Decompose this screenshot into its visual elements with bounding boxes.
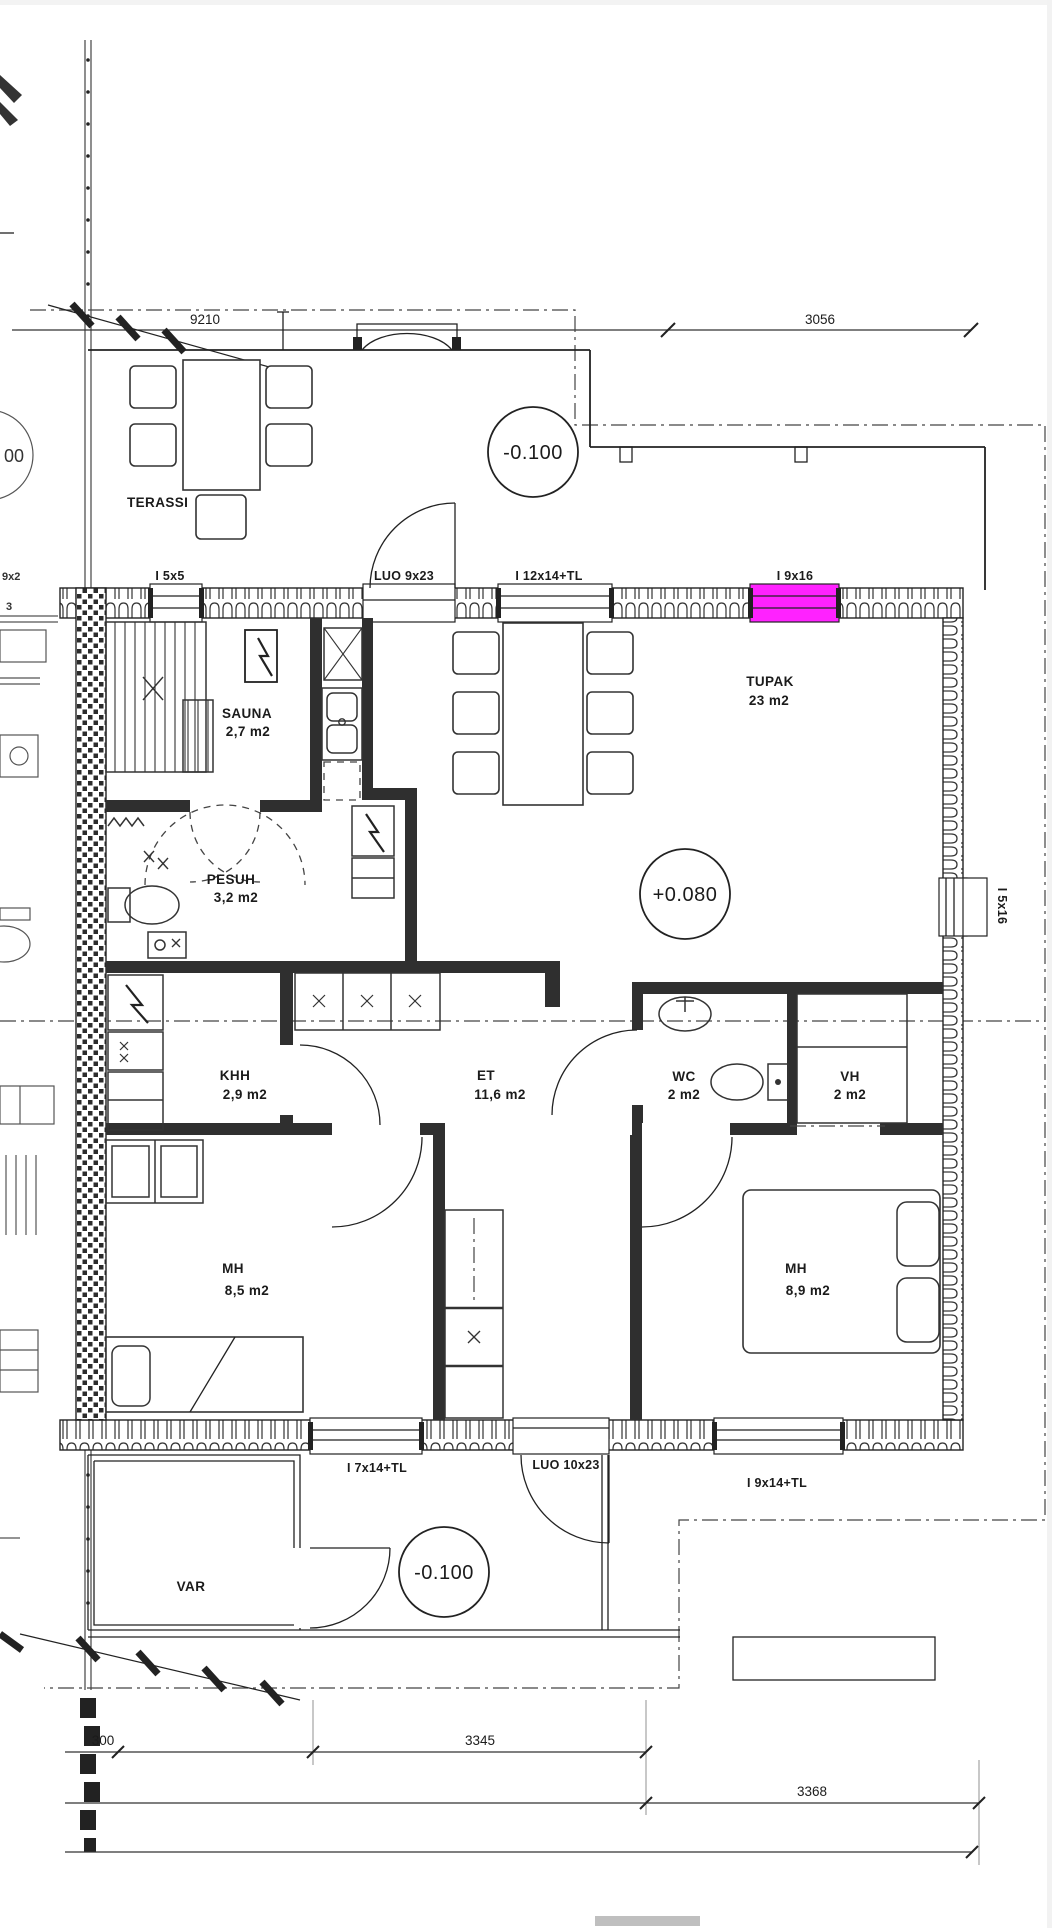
room-area-mh-right: 8,9 m2: [786, 1283, 830, 1298]
room-label-mh-right: MH: [785, 1261, 807, 1276]
neighbor-fragments: 00 9x2 3: [0, 410, 58, 1538]
bed-single-icon: [106, 1337, 303, 1412]
terrace-table-set: [130, 360, 312, 539]
pesuh-fixtures: [108, 818, 186, 958]
appliance-electric-icon: [108, 975, 163, 1030]
window-label-i5x5: I 5x5: [155, 569, 184, 583]
wc-fixtures: [659, 997, 788, 1100]
window-i7x14tl: I 7x14+TL: [308, 1418, 424, 1475]
corner-crop-marks: [0, 75, 22, 233]
boundary-fence-bottom-left: [0, 1634, 300, 1704]
room-area-khh: 2,9 m2: [223, 1087, 267, 1102]
dim-9210: 9210: [190, 312, 220, 327]
mh-left-furniture: [106, 1140, 303, 1412]
toilet-icon-pesuh: [125, 886, 179, 924]
dining-set: [453, 623, 633, 805]
wall-party-left: [76, 588, 106, 1420]
kitchen-fixtures: [322, 628, 394, 898]
window-i5x5: I 5x5: [148, 569, 204, 622]
room-label-mh-left: MH: [222, 1261, 244, 1276]
wall-right: [943, 618, 963, 1420]
room-label-vh: VH: [840, 1069, 860, 1084]
dim-3056: 3056: [805, 312, 835, 327]
window-label-i9x14tl: I 9x14+TL: [747, 1476, 807, 1490]
room-area-sauna: 2,7 m2: [226, 724, 270, 739]
neighbor-window-label-2: 3: [6, 601, 12, 613]
dim-3345: 3345: [465, 1733, 495, 1748]
door-label-luo9x23: LUO 9x23: [374, 569, 434, 583]
porch-post: [620, 447, 632, 462]
window-label-i9x16: I 9x16: [777, 569, 814, 583]
room-area-et: 11,6 m2: [474, 1087, 526, 1102]
boundary-fence-marks-axis: [80, 1698, 100, 1852]
level-value-interior: +0.080: [653, 884, 718, 906]
page-edge-top: [0, 0, 1052, 5]
terrace-canopy: [357, 324, 457, 350]
window-i12x14tl: I 12x14+TL: [496, 569, 614, 622]
window-i9x16: I 9x16: [748, 569, 841, 622]
toilet-tank-pesuh: [108, 888, 130, 922]
bench-leg-cross: [143, 677, 163, 700]
room-label-wc: WC: [672, 1069, 695, 1084]
scan-smudge: [595, 1916, 700, 1926]
room-label-sauna: SAUNA: [222, 706, 272, 721]
khh-fixtures: [108, 975, 163, 1130]
dimension-bottom: 300 3345 3368: [65, 1700, 985, 1865]
window-i5x16: I 5x16: [939, 878, 1009, 936]
counter-dashed: [324, 762, 360, 800]
porch-post: [795, 447, 807, 462]
level-marker-porch: -0.100: [399, 1527, 489, 1617]
door-label-luo10x23: LUO 10x23: [532, 1458, 599, 1472]
room-area-pesuh: 3,2 m2: [214, 890, 258, 905]
toilet-icon-wc: [711, 1064, 763, 1100]
room-label-var: VAR: [177, 1579, 206, 1594]
window-label-i5x16: I 5x16: [995, 888, 1009, 925]
floor-plan-page: 9210 3056: [0, 0, 1052, 1928]
neighbor-window-label: 9x2: [2, 571, 20, 583]
room-area-mh-left: 8,5 m2: [225, 1283, 269, 1298]
room-label-terassi: TERASSI: [127, 495, 188, 510]
neighbor-level-fragment: 00: [4, 446, 24, 466]
door-luo10x23: LUO 10x23: [513, 1418, 609, 1543]
level-marker-terrace: -0.100: [488, 407, 578, 497]
level-marker-interior: +0.080: [640, 849, 730, 939]
room-area-wc: 2 m2: [668, 1087, 700, 1102]
level-value-terrace: -0.100: [503, 442, 563, 464]
var-storage: VAR: [88, 1455, 935, 1680]
room-label-et: ET: [477, 1068, 495, 1083]
sauna-benches: [106, 622, 213, 772]
floor-drain-icon: [148, 932, 186, 958]
dim-300: 300: [92, 1733, 115, 1748]
dimension-top: 9210 3056: [12, 312, 978, 337]
heater-icon: [108, 818, 144, 826]
window-i9x14tl: I 9x14+TL: [712, 1418, 845, 1490]
dim-3368: 3368: [797, 1784, 827, 1799]
outdoor-step: [733, 1637, 935, 1680]
page-edge-right: [1047, 0, 1052, 1928]
corridor-cabinet: [445, 1210, 503, 1418]
floor-plan-drawing: 9210 3056: [0, 0, 1052, 1928]
eaves-outline: [30, 310, 1045, 1688]
door-luo9x23: LUO 9x23: [363, 503, 455, 622]
room-area-tupak: 23 m2: [749, 693, 789, 708]
room-label-pesuh: PESUH: [207, 872, 256, 887]
vh-shelving: [790, 994, 907, 1126]
dining-table: [503, 623, 583, 805]
room-label-khh: KHH: [220, 1068, 250, 1083]
mh-right-furniture: [743, 1190, 940, 1353]
window-label-i12x14tl: I 12x14+TL: [515, 569, 582, 583]
room-label-tupak: TUPAK: [746, 674, 794, 689]
bed-double-icon: [743, 1190, 940, 1353]
sauna-stove-icon: [245, 630, 277, 682]
room-area-vh: 2 m2: [834, 1087, 866, 1102]
level-value-porch: -0.100: [414, 1562, 474, 1584]
window-label-i7x14tl: I 7x14+TL: [347, 1461, 407, 1475]
